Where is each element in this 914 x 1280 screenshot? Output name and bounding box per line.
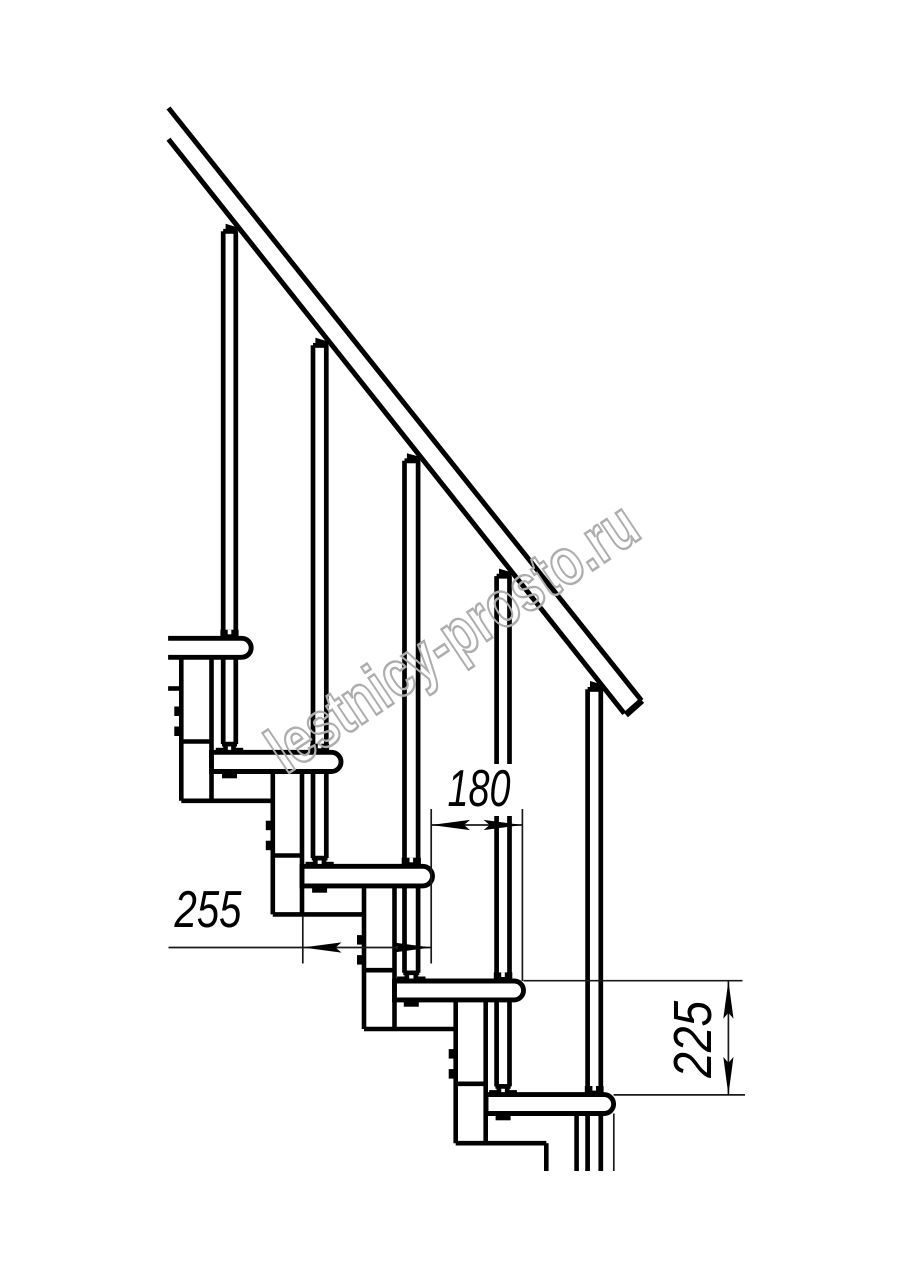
svg-text:225: 225 (663, 1000, 723, 1079)
svg-text:180: 180 (448, 760, 511, 818)
svg-text:255: 255 (174, 881, 243, 939)
